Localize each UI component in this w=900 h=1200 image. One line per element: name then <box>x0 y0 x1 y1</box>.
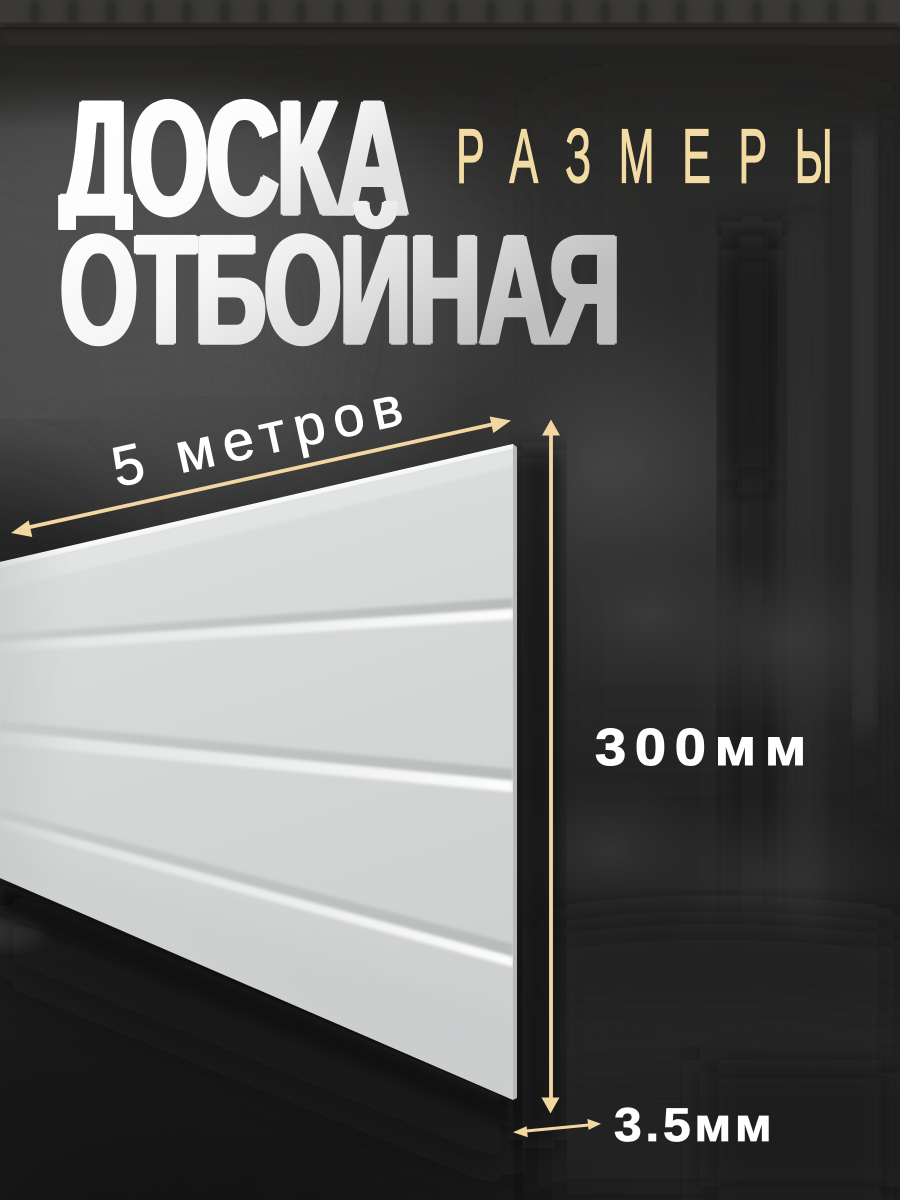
svg-text:РАЗМЕРЫ: РАЗМЕРЫ <box>456 115 860 200</box>
svg-text:ОТБОЙНАЯ: ОТБОЙНАЯ <box>60 201 618 377</box>
svg-text:3.5мм: 3.5мм <box>614 1099 776 1151</box>
svg-text:300мм: 300мм <box>595 719 815 777</box>
